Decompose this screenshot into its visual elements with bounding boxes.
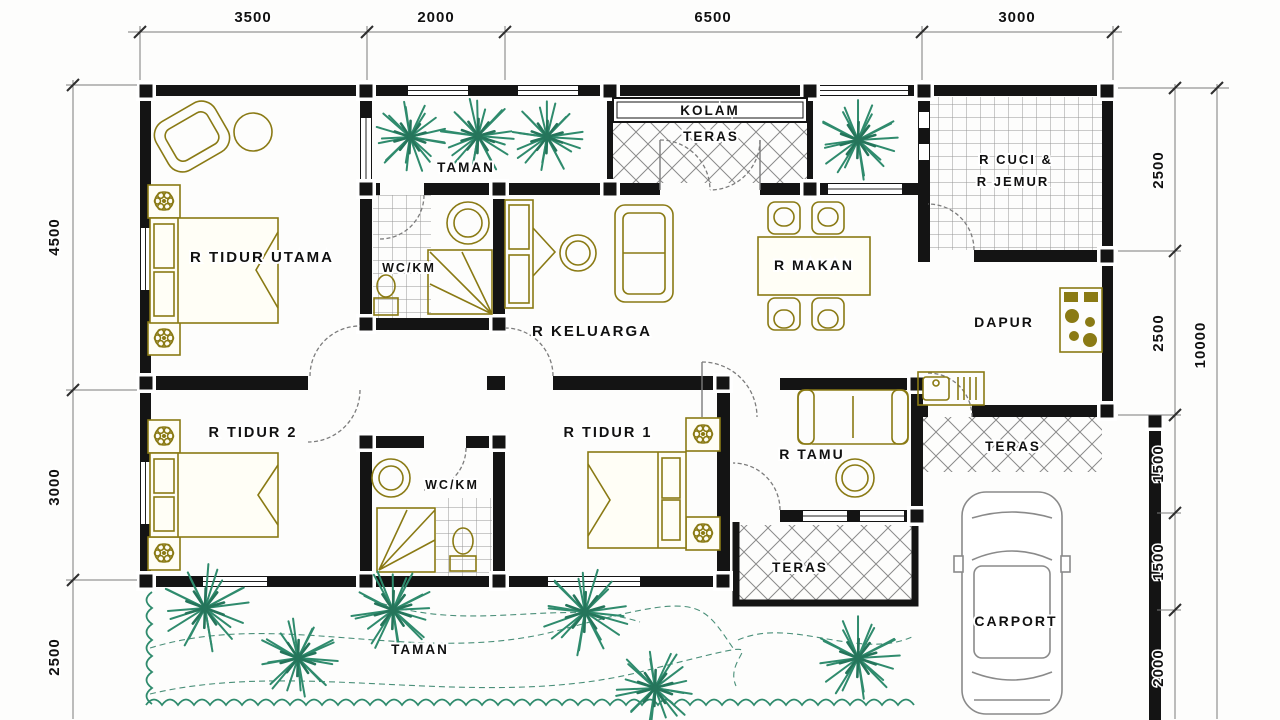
dim-overall-height: 10000 bbox=[1192, 322, 1209, 369]
column bbox=[489, 179, 509, 199]
label-r-tidur-utama: R TIDUR UTAMA bbox=[190, 249, 334, 266]
car bbox=[954, 492, 1070, 714]
vent bbox=[919, 112, 929, 128]
tree-icon bbox=[377, 102, 445, 171]
column bbox=[489, 432, 509, 452]
cabinet-door bbox=[509, 255, 529, 303]
label-r-makan: R MAKAN bbox=[774, 257, 854, 273]
cabinet-door bbox=[509, 205, 529, 249]
window bbox=[141, 462, 150, 524]
column bbox=[713, 373, 733, 393]
label-r-keluarga: R KELUARGA bbox=[532, 323, 652, 340]
column bbox=[907, 506, 927, 526]
label-taman-bottom: TAMAN bbox=[391, 642, 449, 657]
window bbox=[818, 86, 908, 95]
column bbox=[600, 179, 620, 199]
column bbox=[356, 81, 376, 101]
label-r-tamu: R TAMU bbox=[779, 446, 844, 462]
tamu-door-arc bbox=[733, 463, 780, 510]
dim-left-3: 2500 bbox=[46, 638, 63, 675]
column bbox=[914, 81, 934, 101]
window bbox=[803, 511, 847, 521]
column bbox=[1145, 411, 1165, 431]
label-wc-km-1: WC/KM bbox=[382, 261, 436, 275]
column bbox=[136, 373, 156, 393]
sofa-tamu bbox=[798, 390, 908, 444]
label-r-tidur-2: R TIDUR 2 bbox=[209, 425, 298, 441]
column bbox=[489, 571, 509, 591]
column bbox=[1097, 246, 1117, 266]
coffee-table bbox=[566, 241, 590, 265]
dim-top-2: 2000 bbox=[417, 9, 454, 26]
stove bbox=[1060, 288, 1102, 352]
dim-right-4: 1500 bbox=[1150, 543, 1167, 580]
dim-right-5: 2000 bbox=[1150, 649, 1167, 686]
window bbox=[361, 118, 371, 182]
cabinet-open bbox=[533, 228, 555, 276]
label-wc-km-2: WC/KM bbox=[425, 478, 479, 492]
column bbox=[356, 432, 376, 452]
tree-icon bbox=[262, 619, 338, 697]
dim-left-1: 4500 bbox=[46, 218, 63, 255]
label-r-tidur-1: R TIDUR 1 bbox=[564, 425, 653, 441]
label-taman-top: TAMAN bbox=[437, 160, 495, 175]
column bbox=[1097, 81, 1117, 101]
column bbox=[136, 571, 156, 591]
tree-icon bbox=[823, 100, 897, 179]
label-r-cuci-1: R CUCI & bbox=[979, 152, 1053, 167]
column bbox=[356, 179, 376, 199]
column bbox=[356, 314, 376, 334]
tidur2-door-arc bbox=[308, 390, 360, 442]
dim-right-1: 2500 bbox=[1150, 151, 1167, 188]
column bbox=[713, 571, 733, 591]
dim-right-2: 2500 bbox=[1150, 314, 1167, 351]
label-kolam: KOLAM bbox=[680, 103, 740, 118]
column bbox=[136, 81, 156, 101]
label-carport: CARPORT bbox=[974, 613, 1057, 629]
side-table bbox=[842, 465, 868, 491]
label-teras-back: TERAS bbox=[772, 560, 828, 575]
wc2-floor bbox=[436, 498, 492, 576]
label-r-cuci-2: R JEMUR bbox=[977, 174, 1050, 189]
window bbox=[860, 511, 904, 521]
column bbox=[1097, 401, 1117, 421]
window bbox=[141, 228, 150, 290]
garden-area bbox=[146, 592, 914, 705]
dim-left-2: 3000 bbox=[46, 468, 63, 505]
sofa-keluarga bbox=[615, 205, 673, 302]
column bbox=[356, 571, 376, 591]
label-teras-side: TERAS bbox=[985, 439, 1041, 454]
dim-right-3: 1500 bbox=[1150, 445, 1167, 482]
shrub-border bbox=[146, 700, 914, 706]
column bbox=[800, 179, 820, 199]
dim-top-1: 3500 bbox=[234, 9, 271, 26]
window bbox=[828, 184, 902, 194]
dim-top-3: 6500 bbox=[694, 9, 731, 26]
floor-plan-page: 3500 2000 6500 3000 4500 3000 2500 2500 … bbox=[0, 0, 1280, 720]
bed-tidur2 bbox=[148, 420, 278, 570]
window bbox=[518, 86, 578, 95]
floor-plan-drawing: 3500 2000 6500 3000 4500 3000 2500 2500 … bbox=[0, 0, 1280, 720]
tree-icon bbox=[513, 101, 583, 170]
window bbox=[408, 86, 468, 95]
label-teras-front: TERAS bbox=[683, 129, 739, 144]
side-table bbox=[234, 113, 272, 151]
armchair bbox=[149, 95, 236, 177]
dim-top-4: 3000 bbox=[998, 9, 1035, 26]
kitchen-sink-counter bbox=[918, 372, 984, 405]
tidur-utama-door-arc bbox=[310, 326, 360, 376]
wc1-floor bbox=[373, 195, 431, 318]
label-dapur: DAPUR bbox=[974, 314, 1034, 330]
tree-icon bbox=[820, 616, 899, 698]
vent bbox=[919, 144, 929, 160]
column bbox=[489, 314, 509, 334]
